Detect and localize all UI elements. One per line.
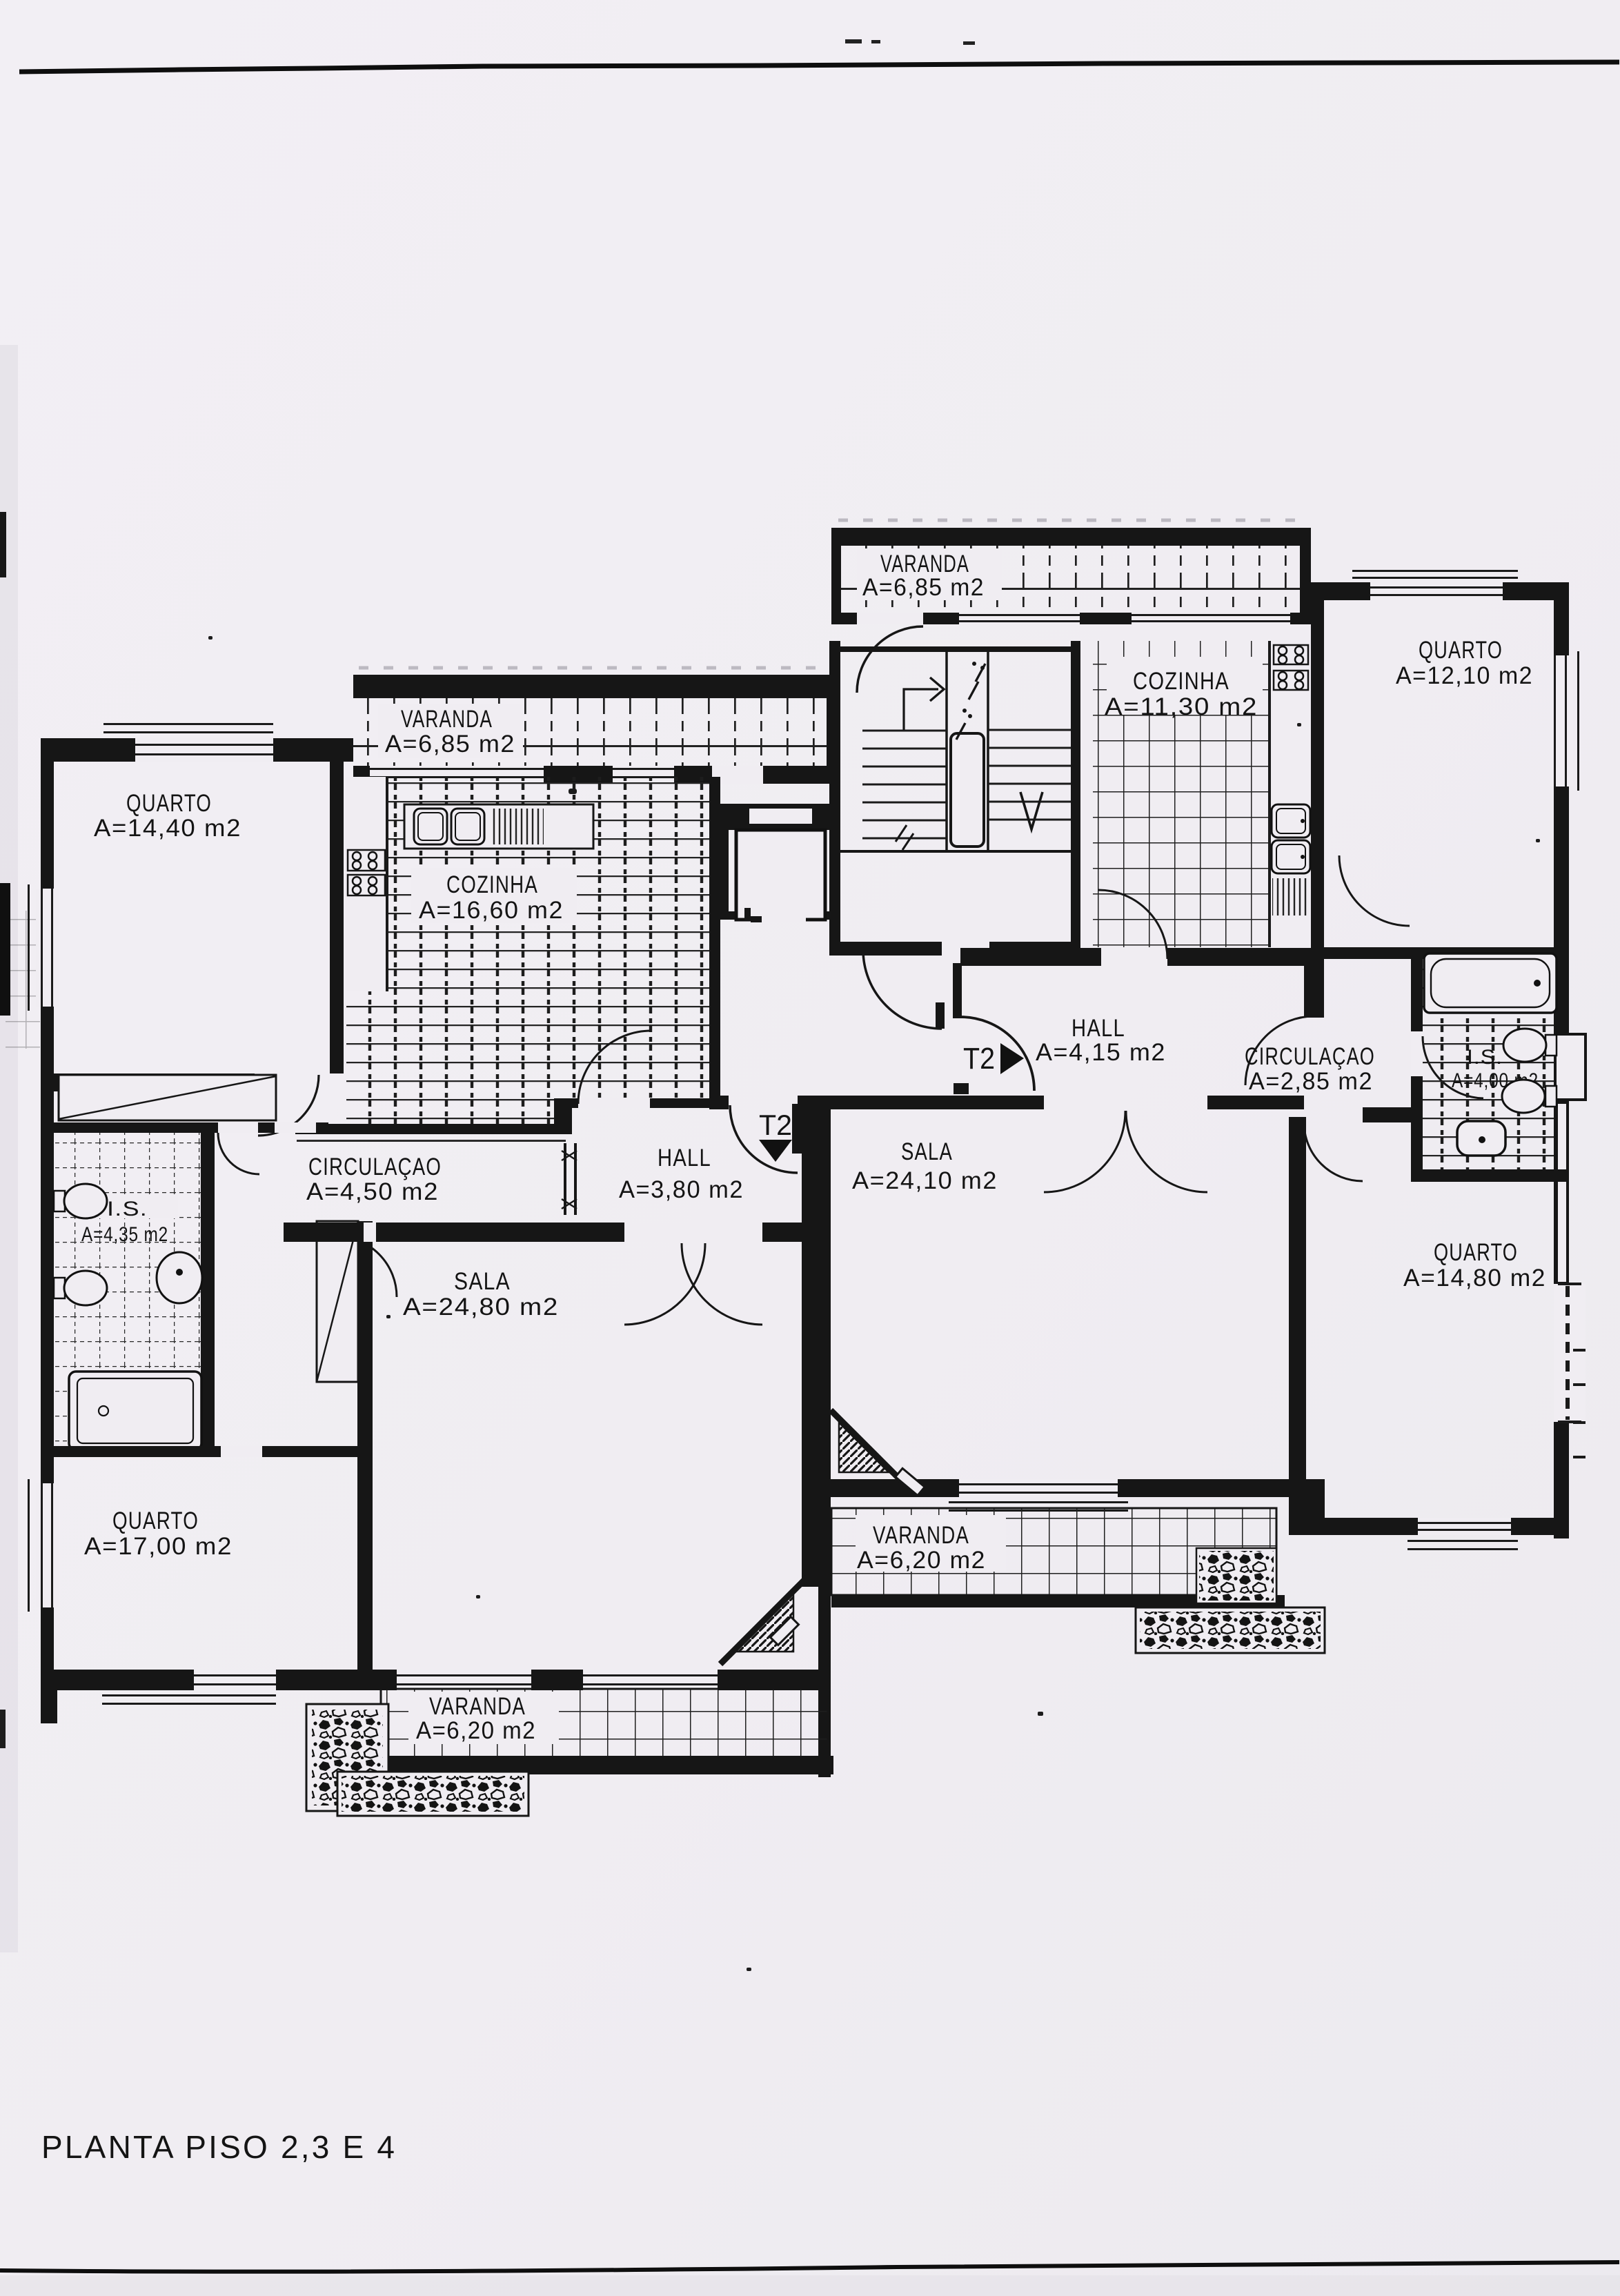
svg-text:QUARTO: QUARTO [1434, 1239, 1518, 1266]
svg-text:A=16,60 m2: A=16,60 m2 [419, 897, 564, 924]
svg-text:HALL: HALL [1071, 1015, 1125, 1042]
svg-text:I.S.: I.S. [107, 1198, 148, 1220]
svg-text:T2: T2 [759, 1109, 792, 1141]
svg-text:A=6,20 m2: A=6,20 m2 [416, 1717, 536, 1744]
svg-text:A=6,85 m2: A=6,85 m2 [385, 731, 515, 758]
svg-text:A=17,00 m2: A=17,00 m2 [84, 1533, 233, 1560]
svg-text:I.S.: I.S. [1467, 1046, 1503, 1069]
svg-text:A=14,40 m2: A=14,40 m2 [94, 815, 241, 842]
svg-text:SALA: SALA [901, 1138, 953, 1165]
svg-text:CIRCULAÇAO: CIRCULAÇAO [308, 1154, 442, 1180]
svg-text:A=4,50 m2: A=4,50 m2 [306, 1178, 439, 1205]
svg-text:A=12,10 m2: A=12,10 m2 [1396, 662, 1533, 689]
svg-text:QUARTO: QUARTO [126, 790, 212, 817]
svg-text:A=4,35 m2: A=4,35 m2 [81, 1223, 168, 1246]
svg-text:A=24,80 m2: A=24,80 m2 [403, 1294, 559, 1320]
svg-text:CIRCULAÇAO: CIRCULAÇAO [1245, 1043, 1375, 1070]
svg-text:A=11,30 m2: A=11,30 m2 [1105, 693, 1258, 720]
svg-text:COZINHA: COZINHA [1133, 668, 1229, 695]
svg-text:A=6,85 m2: A=6,85 m2 [862, 574, 985, 601]
svg-text:SALA: SALA [454, 1268, 511, 1295]
svg-text:A=2,85 m2: A=2,85 m2 [1249, 1068, 1373, 1095]
svg-text:HALL: HALL [658, 1145, 711, 1171]
svg-text:VARANDA: VARANDA [429, 1693, 526, 1720]
svg-text:A=6,20 m2: A=6,20 m2 [857, 1547, 986, 1574]
svg-text:A=14,80 m2: A=14,80 m2 [1403, 1265, 1546, 1291]
svg-text:T2: T2 [963, 1042, 995, 1076]
svg-text:A=3,80 m2: A=3,80 m2 [619, 1176, 744, 1203]
svg-text:VARANDA: VARANDA [873, 1522, 969, 1549]
svg-text:A=24,10 m2: A=24,10 m2 [852, 1167, 998, 1194]
svg-text:VARANDA: VARANDA [401, 706, 493, 733]
svg-text:A=4,15 m2: A=4,15 m2 [1036, 1039, 1166, 1066]
svg-text:COZINHA: COZINHA [446, 871, 538, 898]
svg-text:QUARTO: QUARTO [1419, 637, 1503, 664]
svg-text:QUARTO: QUARTO [112, 1507, 199, 1534]
